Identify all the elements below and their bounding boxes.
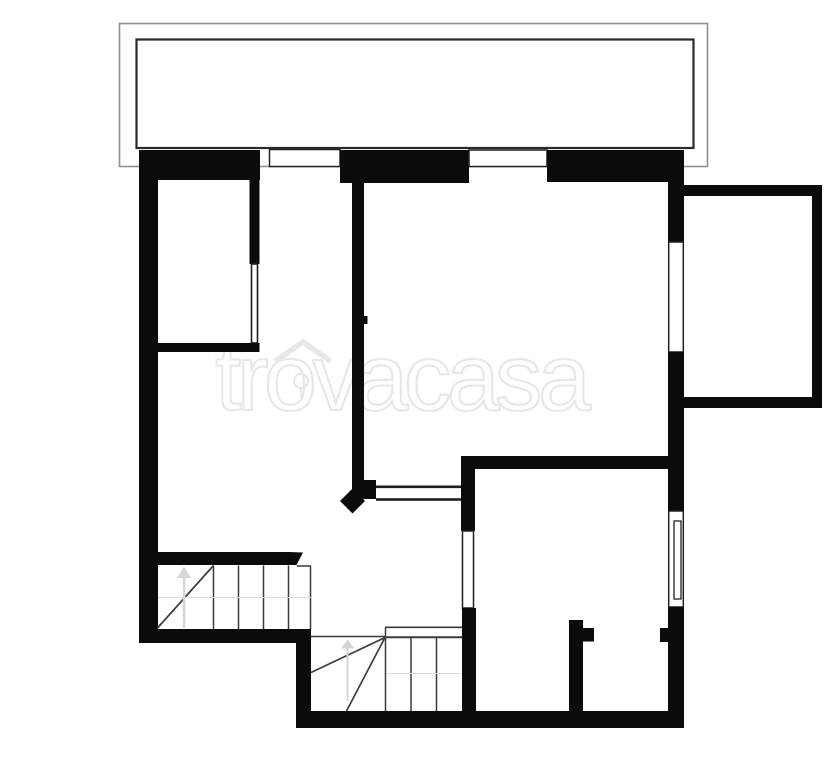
svg-text:trovacasa: trovacasa <box>215 325 591 431</box>
